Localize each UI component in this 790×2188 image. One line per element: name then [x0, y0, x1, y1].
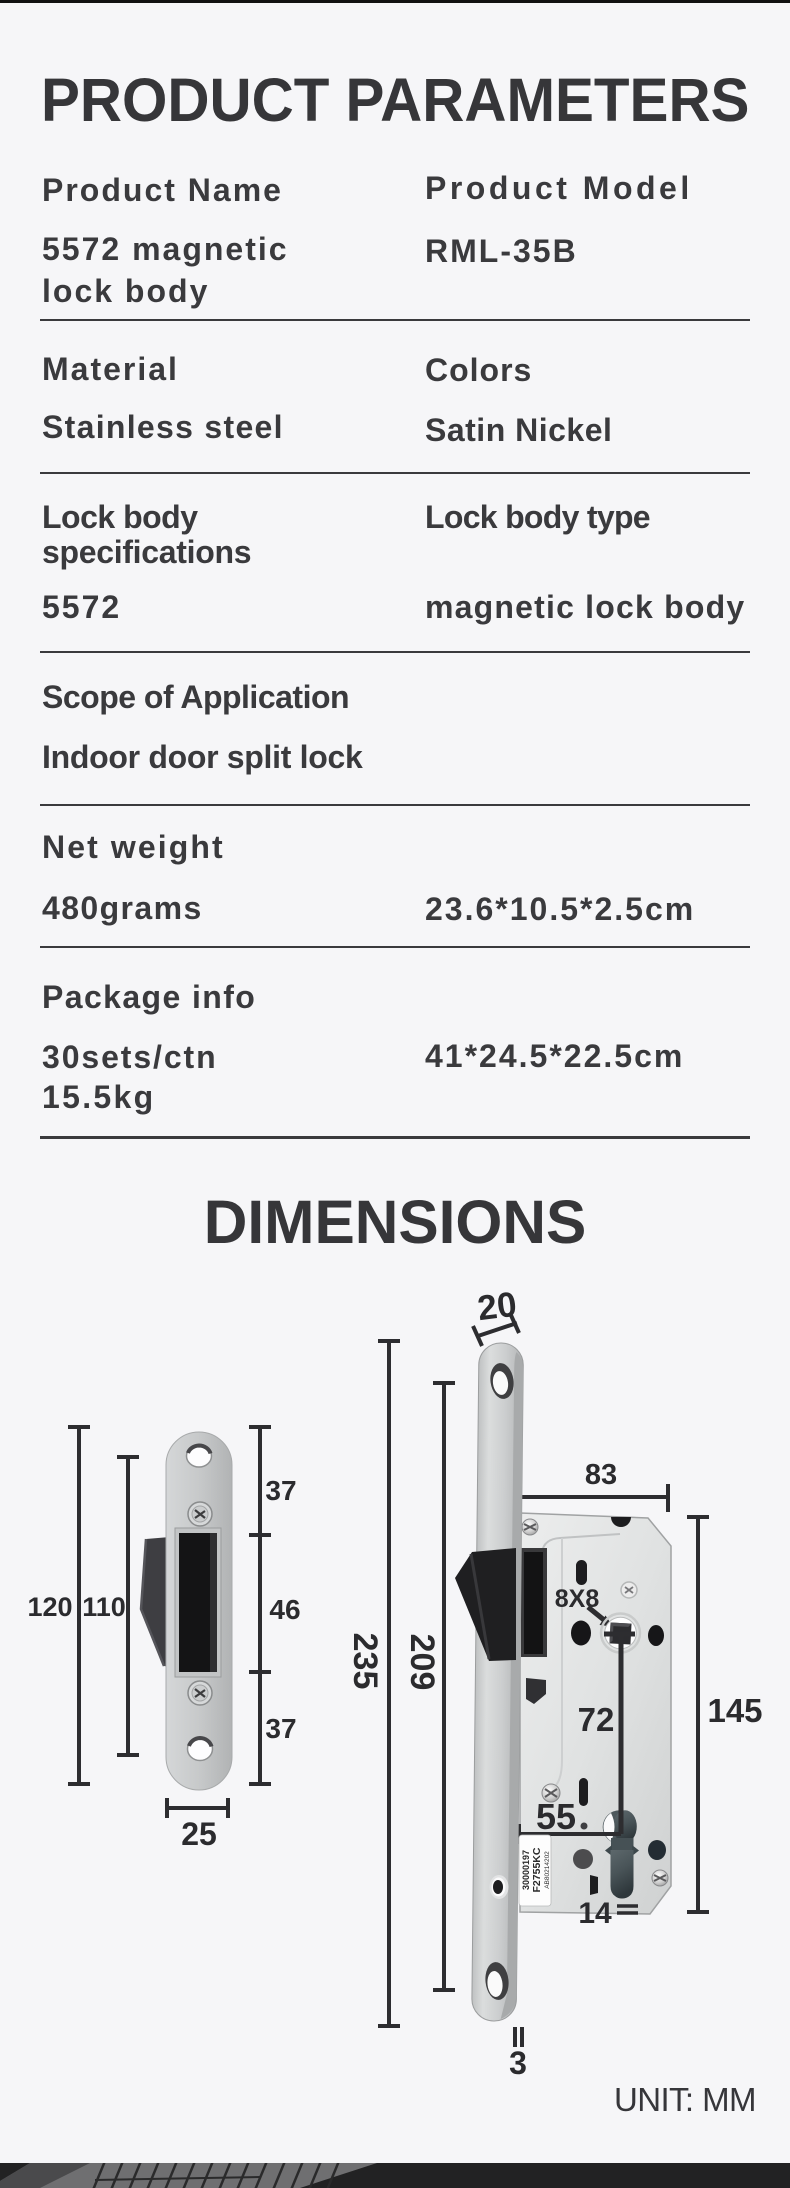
svg-text:37: 37: [265, 1475, 296, 1506]
svg-text:46: 46: [269, 1594, 300, 1625]
svg-text:235: 235: [346, 1633, 384, 1690]
svg-text:37: 37: [265, 1713, 296, 1744]
svg-text:20: 20: [475, 1285, 518, 1328]
svg-text:30000197: 30000197: [521, 1850, 531, 1890]
svg-text:145: 145: [707, 1692, 762, 1729]
svg-text:AB80214202: AB80214202: [544, 1851, 551, 1889]
svg-text:83: 83: [585, 1459, 617, 1491]
svg-text:14: 14: [578, 1897, 612, 1930]
svg-text:3: 3: [509, 2045, 527, 2081]
svg-text:55: 55: [536, 1796, 576, 1837]
svg-text:F2755KC: F2755KC: [531, 1847, 543, 1892]
svg-text:25: 25: [181, 1816, 217, 1852]
svg-text:209: 209: [403, 1634, 441, 1691]
svg-text:72: 72: [578, 1701, 615, 1738]
svg-text:120: 120: [27, 1592, 72, 1622]
svg-text:110: 110: [82, 1592, 126, 1622]
